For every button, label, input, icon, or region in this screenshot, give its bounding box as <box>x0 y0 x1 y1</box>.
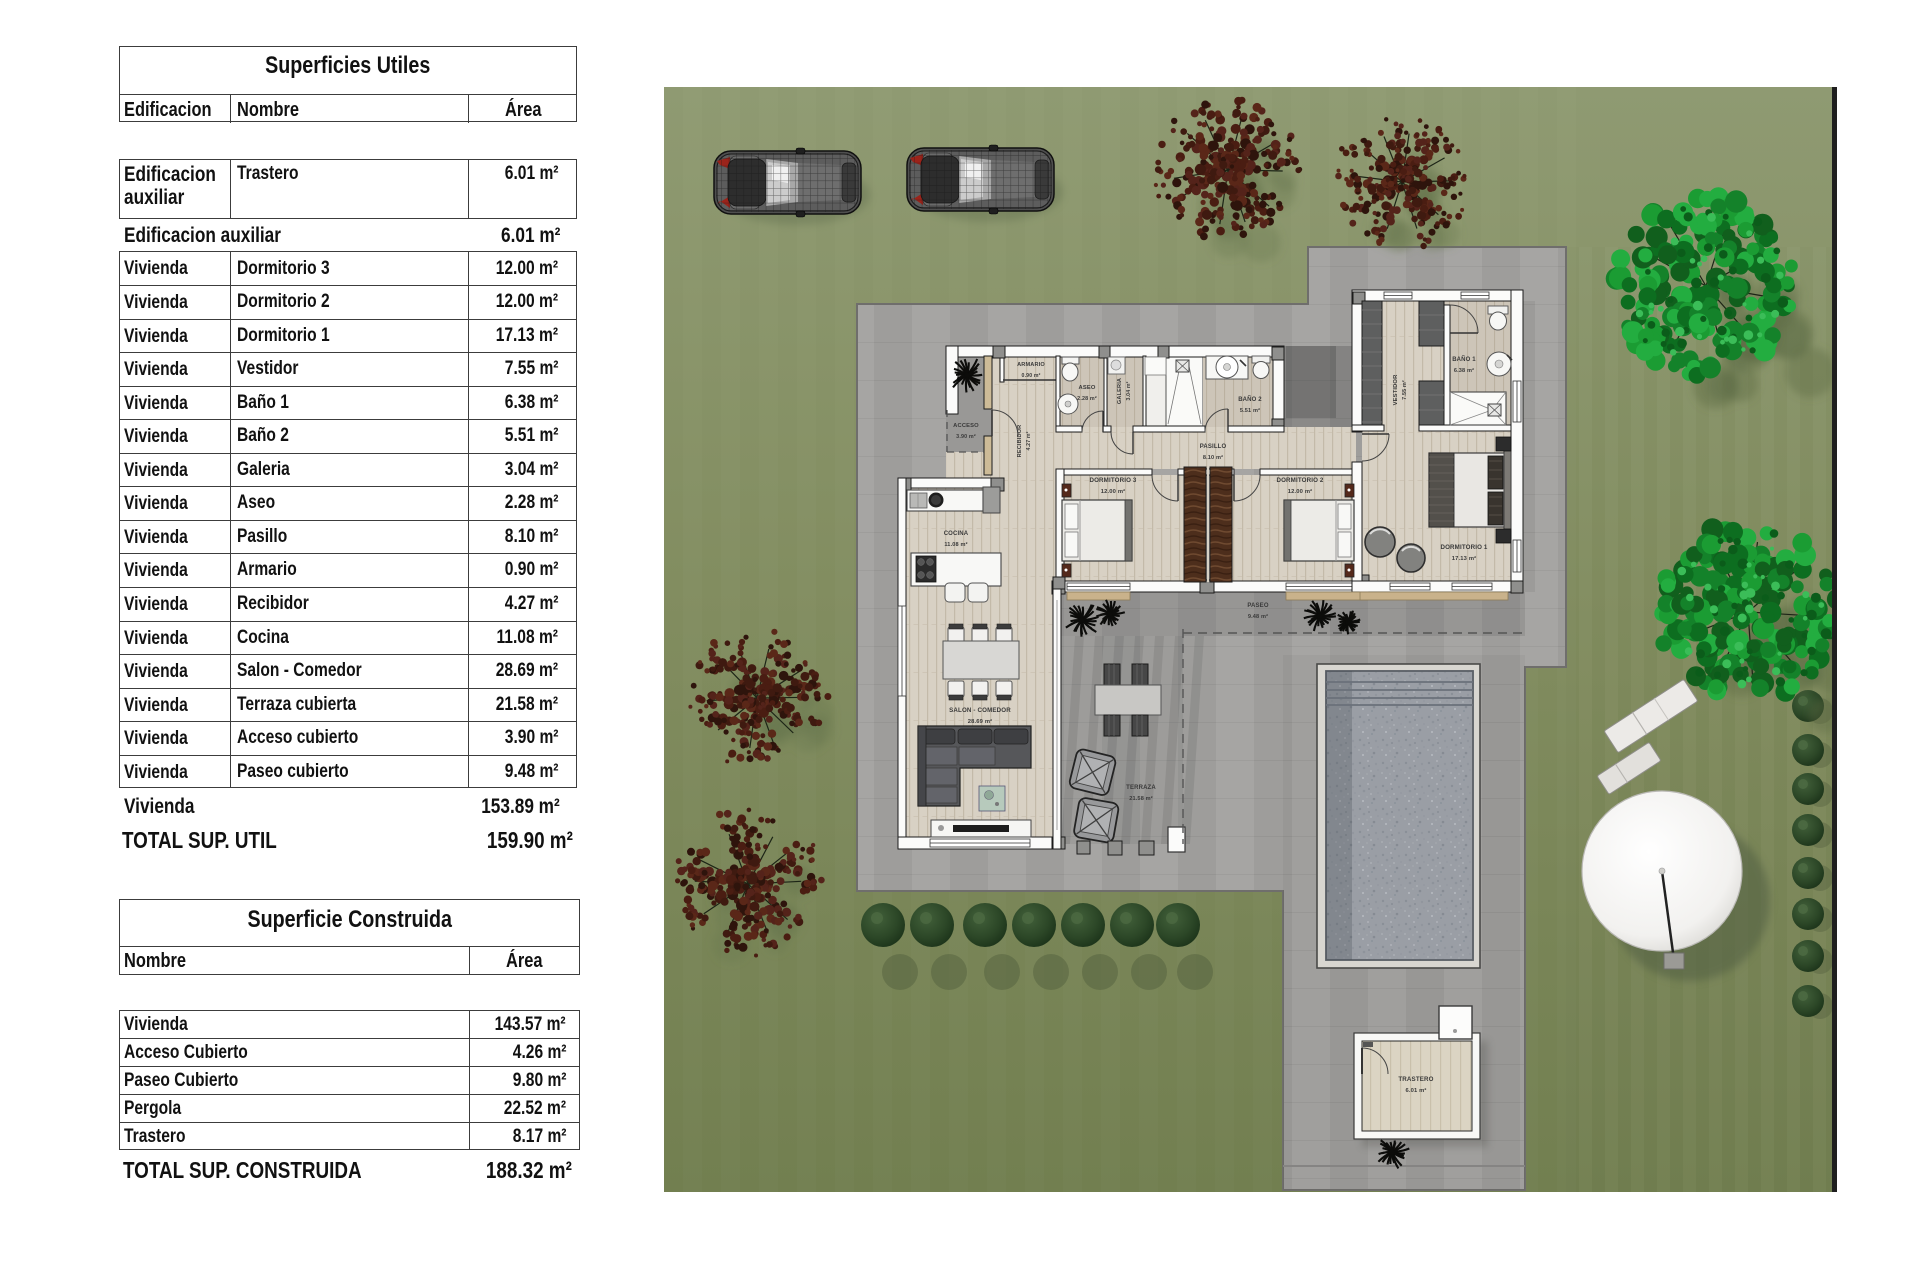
svg-text:TERRAZA: TERRAZA <box>1126 785 1156 791</box>
svg-text:SALON - COMEDOR: SALON - COMEDOR <box>949 707 1011 714</box>
svg-text:7.55 m²: 7.55 m² <box>1402 380 1408 400</box>
svg-text:DORMITORIO 2: DORMITORIO 2 <box>1276 477 1323 484</box>
svg-text:9.48 m²: 9.48 m² <box>1248 613 1268 620</box>
svg-text:21.58 m²: 21.58 m² <box>1129 795 1153 802</box>
svg-text:COCINA: COCINA <box>944 531 969 537</box>
svg-text:6.38 m²: 6.38 m² <box>1454 367 1474 374</box>
svg-text:12.00 m²: 12.00 m² <box>1288 488 1312 495</box>
svg-text:11.08 m²: 11.08 m² <box>944 541 967 548</box>
svg-text:8.10 m²: 8.10 m² <box>1203 454 1223 461</box>
svg-text:ACCESO: ACCESO <box>953 423 979 429</box>
svg-text:0.90 m²: 0.90 m² <box>1022 373 1041 379</box>
svg-text:ASEO: ASEO <box>1078 385 1095 391</box>
svg-text:VESTIDOR: VESTIDOR <box>1393 374 1399 405</box>
svg-text:6.01 m²: 6.01 m² <box>1405 1087 1426 1094</box>
svg-text:3.90 m²: 3.90 m² <box>956 434 976 440</box>
svg-text:17.13 m²: 17.13 m² <box>1452 555 1476 562</box>
svg-text:TRASTERO: TRASTERO <box>1398 1076 1433 1083</box>
svg-text:PASEO: PASEO <box>1247 603 1268 609</box>
svg-text:BAÑO 1: BAÑO 1 <box>1452 356 1476 363</box>
svg-text:GALERIA: GALERIA <box>1117 378 1123 404</box>
svg-text:DORMITORIO 1: DORMITORIO 1 <box>1440 544 1487 551</box>
svg-text:28.69 m²: 28.69 m² <box>968 718 992 725</box>
svg-text:5.51 m²: 5.51 m² <box>1240 407 1260 414</box>
svg-text:2.28 m²: 2.28 m² <box>1077 396 1097 402</box>
svg-text:12.00 m²: 12.00 m² <box>1101 488 1125 495</box>
svg-text:3.04 m²: 3.04 m² <box>1126 381 1132 400</box>
svg-text:PASILLO: PASILLO <box>1200 444 1227 450</box>
svg-text:ARMARIO: ARMARIO <box>1017 362 1045 368</box>
svg-text:4.27 m²: 4.27 m² <box>1026 431 1032 450</box>
svg-text:RECIBIDOR: RECIBIDOR <box>1017 425 1023 458</box>
svg-text:DORMITORIO 3: DORMITORIO 3 <box>1089 477 1136 484</box>
svg-text:BAÑO 2: BAÑO 2 <box>1238 396 1262 403</box>
